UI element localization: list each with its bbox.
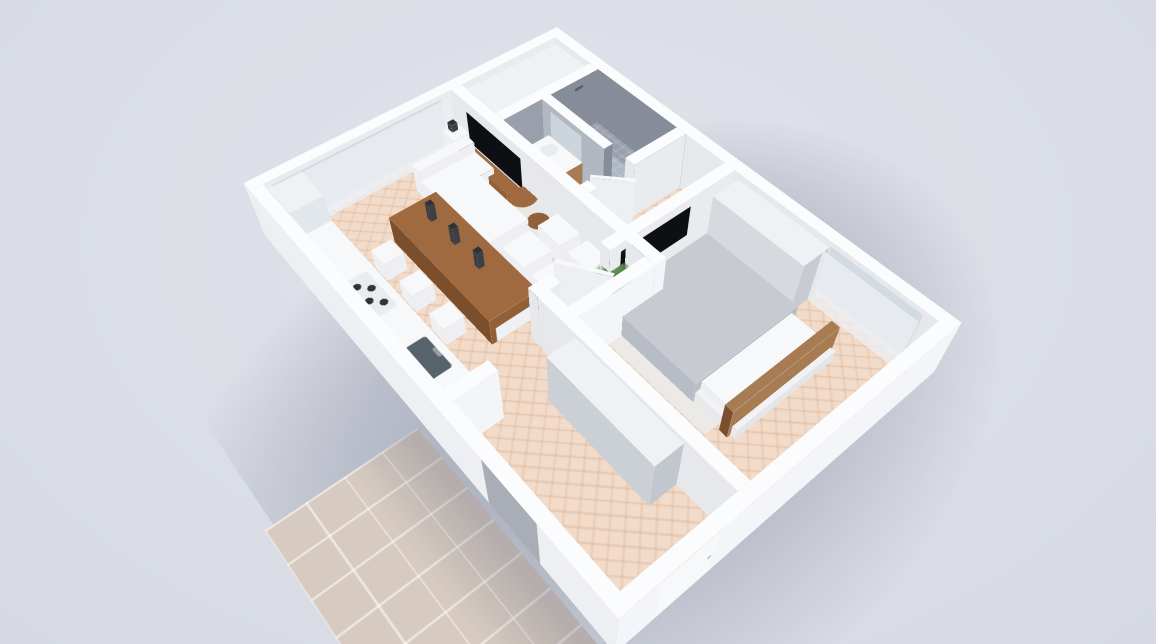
apartment-scene bbox=[265, 81, 934, 644]
apartment-3d-floorplan-render bbox=[0, 0, 1156, 644]
